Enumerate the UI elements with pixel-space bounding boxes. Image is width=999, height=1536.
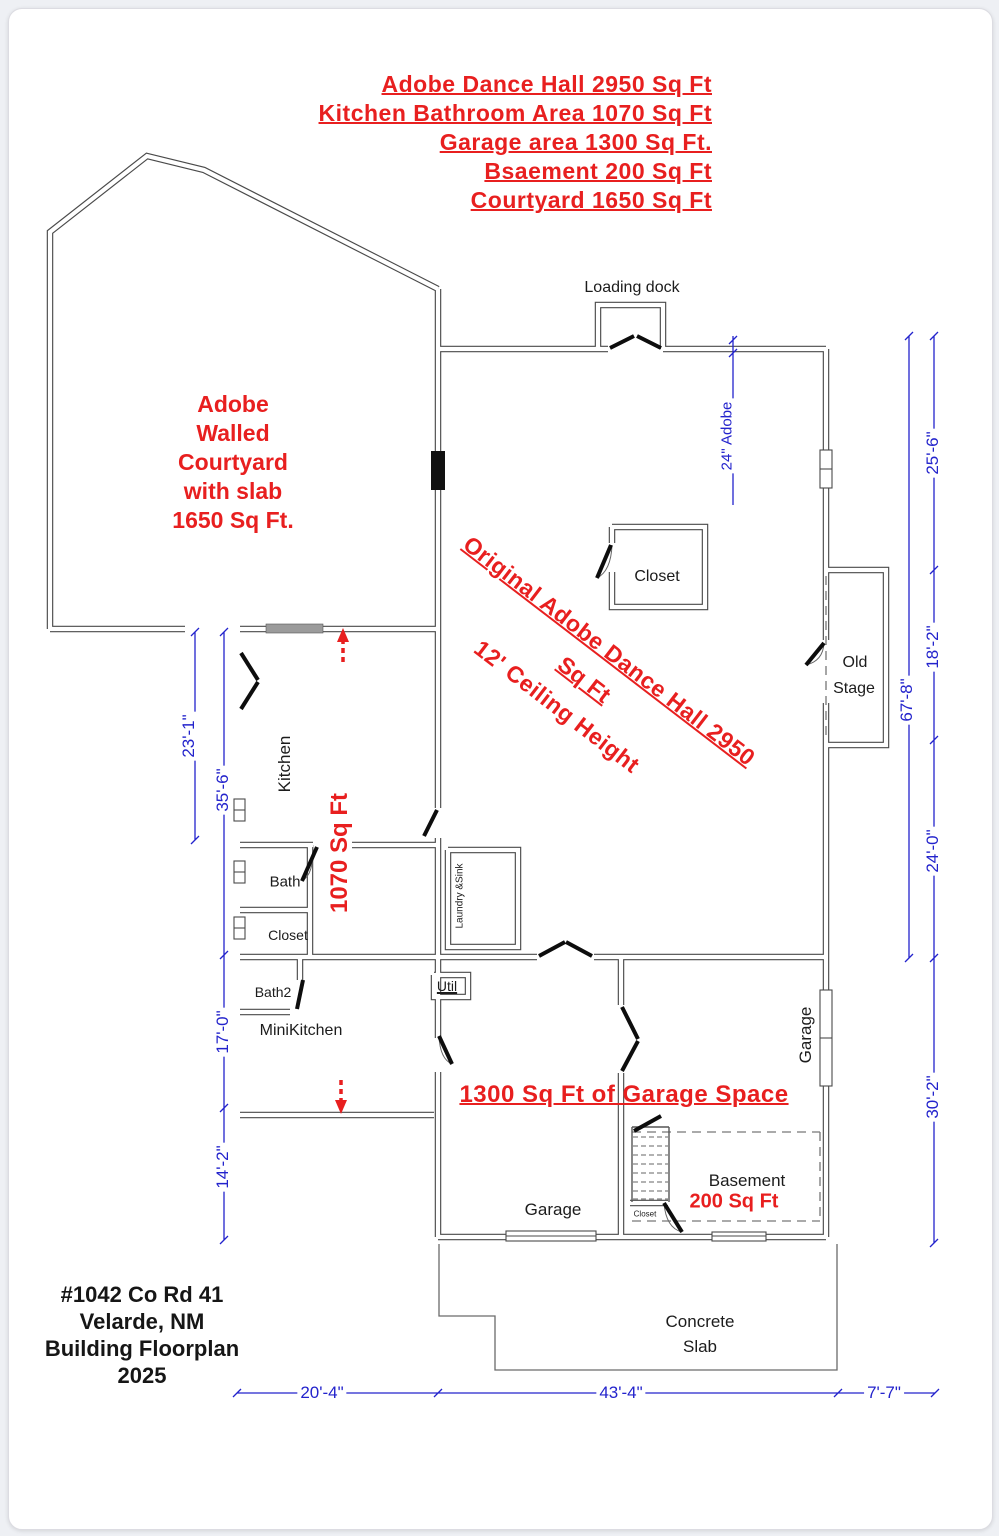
summary-line: Garage area 1300 Sq Ft. [319,128,712,157]
dim-bottom-43-4: 43'-4" [596,1383,645,1403]
dim-bottom-7-7: 7'-7" [864,1383,904,1403]
kitchen-sqft-annotation: 1070 Sq Ft [326,793,354,913]
title-line-address: #1042 Co Rd 41 [22,1281,262,1308]
summary-line: Kitchen Bathroom Area 1070 Sq Ft [319,99,712,128]
courtyard-line: 1650 Sq Ft. [113,506,353,535]
summary-line: Courtyard 1650 Sq Ft [319,186,712,215]
area-summary: Adobe Dance Hall 2950 Sq Ft Kitchen Bath… [319,70,712,215]
label-bath2: Bath2 [255,984,292,1000]
concrete-slab-outline [439,1244,837,1370]
label-basement-sqft: 200 Sq Ft [690,1191,779,1214]
label-concrete-1: Concrete [666,1312,735,1332]
dim-right-30-2: 30'-2" [923,1072,943,1121]
walls [50,156,886,1237]
dim-right-24-0: 24'-0" [923,826,943,875]
dim-right-18-2: 18'-2" [923,622,943,671]
title-block: #1042 Co Rd 41 Velarde, NM Building Floo… [22,1281,262,1389]
garage-sqft-annotation: 1300 Sq Ft of Garage Space [459,1081,788,1109]
courtyard-line: Adobe [113,390,353,419]
label-minikitchen: MiniKitchen [260,1022,343,1040]
label-laundry-sink: Laundry &Sink [455,863,466,928]
staircase [632,1127,669,1202]
label-kitchen: Kitchen [275,736,295,793]
label-garage-right: Garage [796,1007,816,1064]
dim-right-67-8: 67'-8" [897,675,917,724]
label-basement: Basement [709,1171,786,1191]
courtyard-label: Adobe Walled Courtyard with slab 1650 Sq… [113,390,353,535]
sliding-door [266,624,323,633]
floorplan-page: { "summary": { "lines": [ "Adobe Dance H… [0,0,999,1536]
label-garage-left: Garage [525,1200,582,1220]
summary-line: Adobe Dance Hall 2950 Sq Ft [319,70,712,99]
label-util: Util [437,978,457,994]
label-bath: Bath [270,874,301,891]
title-line-year: 2025 [22,1362,262,1389]
dim-wall-24-adobe: 24" Adobe [719,399,736,474]
label-basement-closet: Closet [634,1210,657,1219]
dim-left-35-6: 35'-6" [213,765,233,814]
label-kitchen-closet: Closet [268,927,308,943]
label-loading-dock: Loading dock [584,279,679,297]
courtyard-line: Courtyard [113,448,353,477]
dim-left-23-1: 23'-1" [179,711,199,760]
label-old-stage-2: Stage [833,680,875,698]
courtyard-door [431,451,445,490]
label-old-stage-1: Old [843,654,868,672]
title-line-type: Building Floorplan [22,1335,262,1362]
dim-left-17-0: 17'-0" [213,1007,233,1056]
summary-line: Bsaement 200 Sq Ft [319,157,712,186]
dim-left-14-2: 14'-2" [213,1142,233,1191]
courtyard-line: Walled [113,419,353,448]
dim-bottom-20-4: 20'-4" [297,1383,346,1403]
title-line-city: Velarde, NM [22,1308,262,1335]
courtyard-line: with slab [113,477,353,506]
label-concrete-2: Slab [683,1337,717,1357]
dim-right-25-6: 25'-6" [923,428,943,477]
label-closet: Closet [634,568,679,586]
